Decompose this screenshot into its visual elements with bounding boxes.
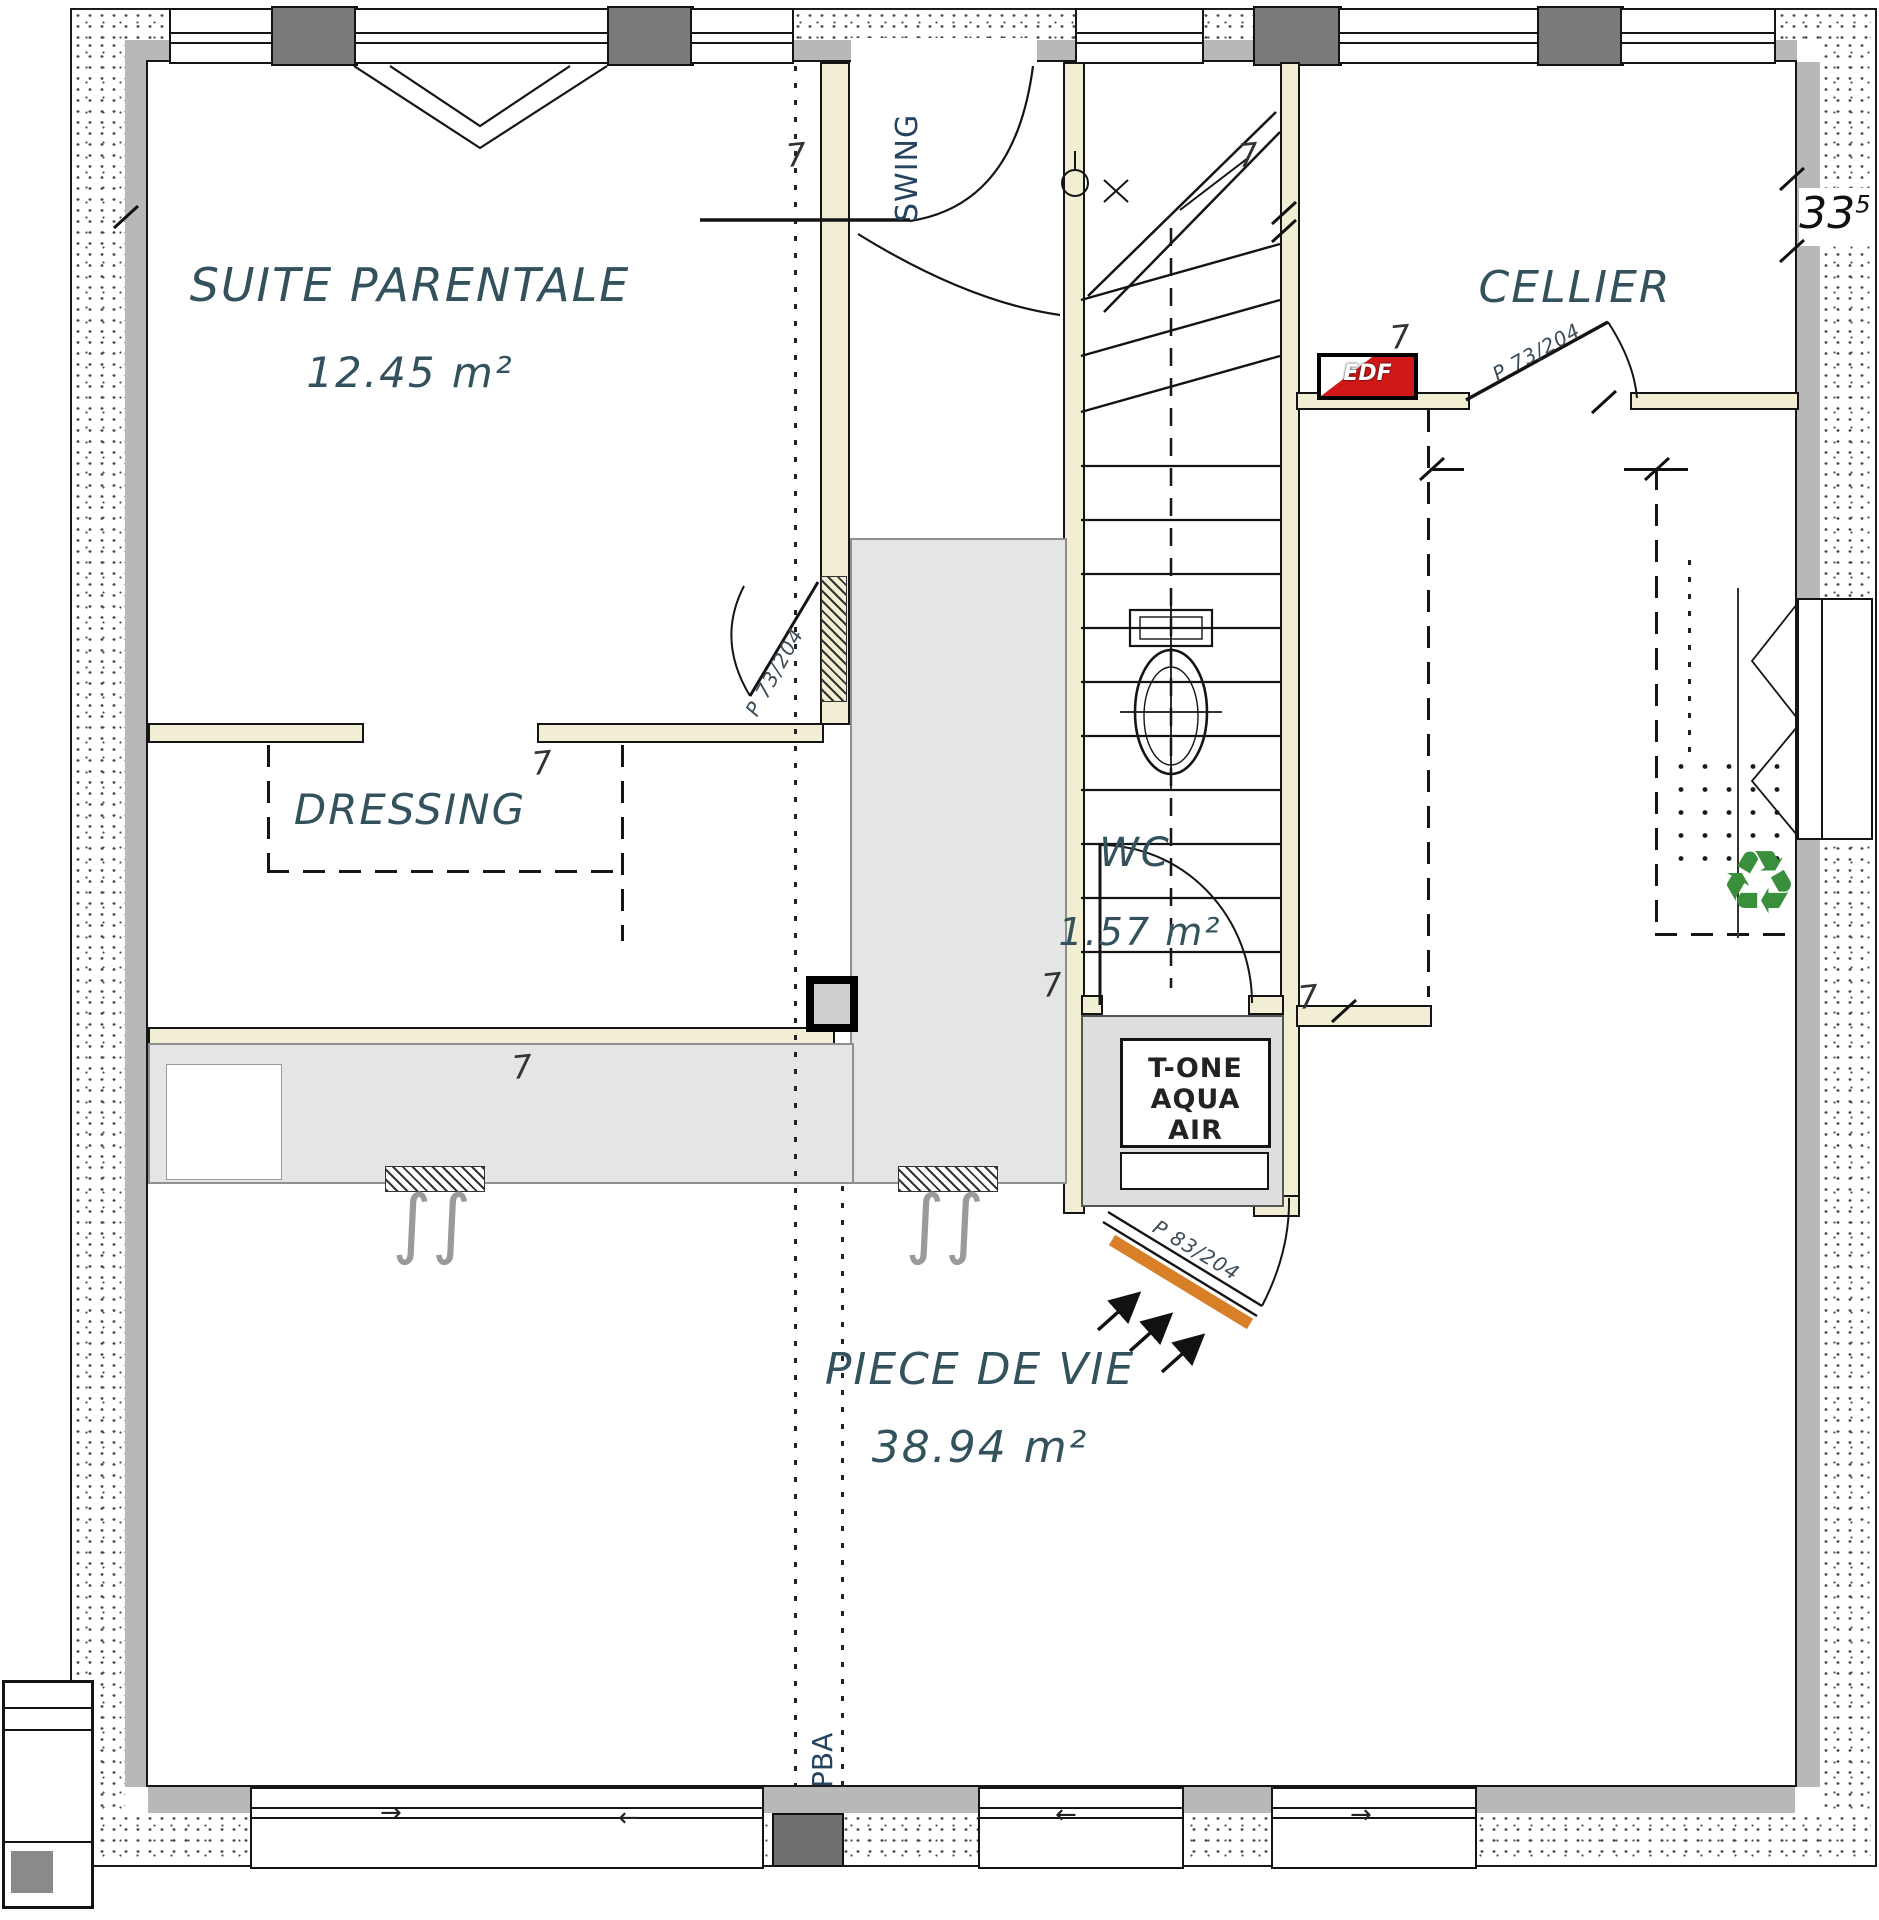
radiator-icon: ∫∫: [392, 1178, 471, 1267]
dim-segment: [1624, 468, 1688, 471]
kitchen-counter-column: [850, 538, 1067, 1184]
dressing-dash-right: [621, 745, 624, 941]
dimension-33-text: 335: [1799, 188, 1870, 239]
dim-7: 7: [530, 743, 554, 783]
floor-plan-page: { "rooms": { "suite": {"name": "SUITE PA…: [0, 0, 1879, 1920]
pantry-dash-left: [1655, 468, 1658, 936]
room-label-wc: WC: [1075, 830, 1195, 876]
wall-suite-bottom-right: [537, 723, 824, 743]
utility-box-block: [11, 1851, 53, 1893]
radiator-glyph: ∫∫: [392, 1178, 471, 1267]
window: [1620, 8, 1776, 64]
wall-wc-bottom-left: [1081, 995, 1103, 1015]
right-casement-window: [1797, 598, 1873, 840]
window: [1338, 8, 1541, 64]
wall-pier: [1253, 6, 1342, 66]
slide-arrow: →: [1350, 1800, 1372, 1830]
room-label-suite: SUITE PARENTALE: [150, 258, 670, 312]
window: [978, 1787, 1184, 1869]
wall-cellier-bottom-right: [1630, 392, 1799, 410]
hvac-unit-tray: [1120, 1152, 1269, 1190]
edf-box: EDF: [1317, 353, 1418, 400]
pocket-door-hatch: [821, 576, 847, 702]
pba-label: PBA: [806, 1698, 839, 1788]
dim-33-sup: 5: [1855, 190, 1870, 218]
recycle-glyph: ♻: [1720, 831, 1799, 934]
zone-dash-line: [1427, 410, 1430, 997]
door-opening-eraser: [851, 38, 1037, 64]
counter-inset: [166, 1064, 282, 1180]
slide-arrow: ←: [1055, 1800, 1077, 1830]
wall-insulation-right: [1820, 40, 1871, 1813]
room-area-wc: 1.57 m²: [1030, 910, 1250, 954]
wall-band-left: [125, 62, 148, 1787]
flue-block: [806, 976, 858, 1032]
wall-suite-bottom-left: [148, 723, 364, 743]
utility-box-line: [5, 1841, 91, 1843]
edf-label: EDF: [1321, 361, 1414, 386]
window-bay: [354, 8, 611, 64]
slide-arrow: →: [380, 1798, 402, 1828]
axis-line-pba-right: [841, 1186, 844, 1785]
wall-pier: [271, 6, 358, 66]
wall-wc-bottom-right: [1248, 995, 1284, 1015]
window-mullion: [1821, 600, 1823, 838]
dim-7: 7: [1388, 317, 1412, 357]
hvac-unit-box: T-ONE AQUA AIR: [1120, 1038, 1271, 1148]
hvac-label-line1: T-ONE: [1123, 1053, 1268, 1084]
wall-insulation-left: [72, 40, 125, 1813]
radiator-icon: ∫∫: [905, 1178, 984, 1267]
wall-pier: [1537, 6, 1624, 66]
window: [1075, 8, 1204, 64]
slide-arrow: ←: [618, 1803, 640, 1833]
dim-7: 7: [510, 1047, 534, 1087]
window: [1271, 1787, 1477, 1869]
dim-7: 7: [784, 135, 808, 175]
dimension-33-box: 335: [1799, 188, 1871, 246]
axis-line-pba-left: [794, 66, 797, 1785]
room-area-piece-de-vie: 38.94 m²: [840, 1422, 1120, 1473]
dim-segment: [1430, 468, 1464, 471]
dressing-dash-bottom: [267, 870, 625, 873]
wall-pier: [772, 1813, 844, 1867]
utility-box-line: [5, 1707, 91, 1709]
recycle-icon: ♻: [1704, 828, 1814, 938]
dim-7: 7: [1296, 977, 1320, 1017]
dim-7: 7: [1236, 135, 1260, 175]
dim-7: 7: [1040, 965, 1064, 1005]
hvac-label-line2: AQUA AIR: [1123, 1084, 1268, 1146]
window: [169, 8, 275, 64]
room-area-suite: 12.45 m²: [230, 348, 590, 397]
window: [690, 8, 794, 64]
swing-label: SWING: [890, 72, 925, 222]
sliding-bay-window: [250, 1787, 764, 1869]
utility-box-line: [5, 1729, 91, 1731]
dim-33: 33: [1799, 188, 1855, 239]
pantry-dot-line: [1688, 560, 1691, 756]
room-label-piece-de-vie: PIECE DE VIE: [790, 1344, 1170, 1395]
radiator-glyph: ∫∫: [905, 1178, 984, 1267]
room-label-cellier: CELLIER: [1430, 262, 1720, 313]
exterior-utility-box: [2, 1680, 94, 1909]
room-label-dressing: DRESSING: [270, 785, 550, 834]
wall-pier: [607, 6, 694, 66]
